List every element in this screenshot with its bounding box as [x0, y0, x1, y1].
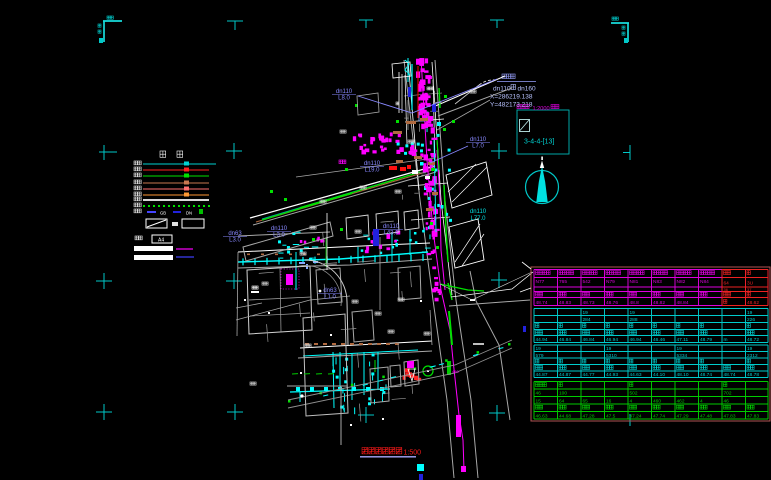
svg-text:48.76: 48.76 [606, 300, 618, 306]
svg-text:284: 284 [583, 317, 591, 323]
svg-text:N81: N81 [630, 279, 639, 285]
svg-text:47.29: 47.29 [677, 413, 689, 419]
svg-text:N79: N79 [606, 279, 615, 285]
svg-text:GB: GB [160, 211, 166, 216]
svg-text:46.46: 46.46 [653, 337, 665, 343]
svg-text:L3.0: L3.0 [229, 238, 241, 244]
svg-text:N84: N84 [700, 279, 709, 285]
svg-text:19: 19 [630, 310, 636, 316]
svg-text:44.87: 44.87 [536, 372, 548, 378]
svg-text:46.84: 46.84 [583, 337, 595, 343]
svg-text:47.83: 47.83 [747, 413, 759, 419]
svg-text:288: 288 [630, 317, 638, 323]
svg-text:L43.0: L43.0 [383, 231, 399, 237]
svg-text:47.5: 47.5 [606, 413, 616, 419]
svg-text:64: 64 [559, 398, 565, 404]
svg-text:19: 19 [677, 346, 683, 352]
svg-text:44.93: 44.93 [606, 372, 618, 378]
svg-text:579: 579 [536, 353, 544, 359]
svg-text:64: 64 [724, 281, 730, 287]
svg-text:4: 4 [630, 398, 633, 404]
svg-text:dn110: dn110 [470, 137, 487, 143]
svg-text:19: 19 [747, 310, 753, 316]
svg-text:460: 460 [653, 398, 661, 404]
svg-text:462: 462 [677, 398, 685, 404]
svg-text:L19.0: L19.0 [364, 168, 380, 174]
svg-text:16: 16 [606, 398, 612, 404]
svg-text:m: m [724, 338, 728, 343]
svg-text:48.74: 48.74 [536, 300, 548, 306]
svg-text:X=286219.138: X=286219.138 [490, 94, 533, 101]
svg-text:48.82: 48.82 [653, 300, 665, 306]
svg-text:dn63: dn63 [228, 231, 242, 237]
svg-text:44.68: 44.68 [559, 413, 571, 419]
svg-text:48.74: 48.74 [724, 372, 736, 378]
svg-text:46.84: 46.84 [559, 337, 571, 343]
svg-text:dn63: dn63 [323, 288, 337, 294]
svg-text:502: 502 [630, 391, 638, 397]
svg-text:3U: 3U [747, 281, 754, 287]
svg-text:47.83: 47.83 [724, 413, 736, 419]
svg-text:5310: 5310 [606, 353, 617, 359]
svg-text:44.94: 44.94 [536, 337, 548, 343]
svg-text:1:500: 1:500 [403, 450, 421, 457]
svg-text:48.73: 48.73 [583, 300, 595, 306]
svg-text:19: 19 [583, 310, 589, 316]
svg-text:dn110: dn110 [364, 161, 381, 167]
svg-text:46.94: 46.94 [606, 337, 618, 343]
svg-text:19: 19 [606, 346, 612, 352]
svg-text:dn110: dn110 [336, 89, 353, 95]
svg-text:DN: DN [186, 211, 192, 216]
svg-text:N82: N82 [677, 279, 686, 285]
svg-text:226: 226 [747, 317, 755, 323]
svg-text:46.63: 46.63 [536, 413, 548, 419]
svg-text:48.84: 48.84 [677, 300, 689, 306]
svg-text:A4: A4 [158, 238, 164, 244]
svg-text:4: 4 [700, 398, 703, 404]
svg-text:702: 702 [724, 391, 732, 397]
svg-text:542: 542 [583, 279, 591, 285]
svg-text:L1.0: L1.0 [324, 295, 336, 301]
svg-text:L7.0: L7.0 [472, 144, 484, 150]
svg-text:Y=482173.218: Y=482173.218 [490, 102, 533, 109]
svg-text:48.62: 48.62 [747, 300, 759, 306]
svg-text:48.78: 48.78 [747, 372, 759, 378]
svg-text:47.28: 47.28 [583, 413, 595, 419]
svg-text:48.74: 48.74 [700, 372, 712, 378]
svg-text:48.79: 48.79 [700, 337, 712, 343]
svg-text:47.11: 47.11 [677, 337, 689, 343]
svg-text:44.87: 44.87 [559, 372, 571, 378]
svg-text:48.10: 48.10 [677, 372, 689, 378]
svg-text:3-4-4-[13]: 3-4-4-[13] [524, 139, 554, 146]
svg-text:N83: N83 [653, 279, 662, 285]
svg-text:480: 480 [452, 369, 459, 374]
svg-text:N77: N77 [536, 279, 545, 285]
svg-text:47.24: 47.24 [630, 413, 642, 419]
svg-text:36: 36 [724, 287, 729, 292]
svg-text:19: 19 [747, 346, 753, 352]
svg-text:100: 100 [559, 391, 567, 397]
svg-text:L8.0: L8.0 [338, 96, 350, 102]
svg-text:dn110: dn110 [271, 226, 288, 232]
svg-text:47.48: 47.48 [700, 413, 712, 419]
svg-text:48.83: 48.83 [559, 300, 571, 306]
svg-text:L3.0: L3.0 [273, 233, 285, 239]
svg-text:L77.0: L77.0 [470, 216, 486, 222]
svg-text:46: 46 [724, 398, 730, 404]
svg-text:dn110: dn110 [470, 209, 487, 215]
svg-text:1:2000: 1:2000 [533, 106, 550, 112]
svg-text:65: 65 [583, 398, 589, 404]
svg-text:765: 765 [559, 279, 567, 285]
svg-text:15: 15 [536, 398, 542, 404]
svg-text:2312: 2312 [747, 353, 758, 359]
svg-text:44.10: 44.10 [653, 372, 665, 378]
svg-text:dn160: dn160 [518, 86, 536, 93]
svg-text:5334: 5334 [677, 353, 688, 359]
svg-text:48.8: 48.8 [630, 300, 640, 306]
svg-text:37: 37 [747, 287, 752, 292]
svg-text:44.63: 44.63 [630, 372, 642, 378]
svg-text:46.94: 46.94 [630, 337, 642, 343]
svg-text:dn110: dn110 [383, 224, 400, 230]
svg-text:19: 19 [536, 346, 542, 352]
svg-text:44.77: 44.77 [583, 372, 595, 378]
svg-text:47.74: 47.74 [653, 413, 665, 419]
svg-text:48.72: 48.72 [747, 337, 759, 343]
svg-text:46: 46 [536, 391, 542, 397]
